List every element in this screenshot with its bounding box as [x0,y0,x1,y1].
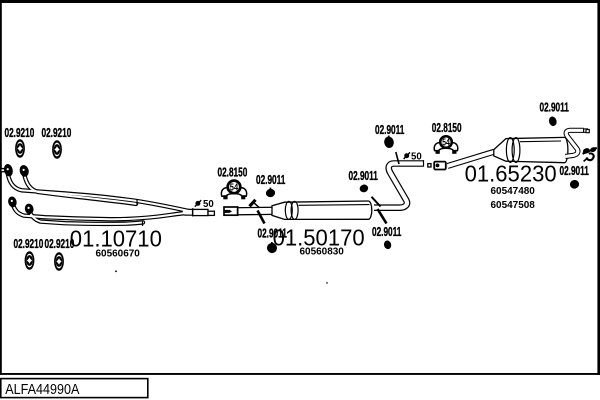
svg-text:02.9210: 02.9210 [14,237,44,251]
svg-text:02.9011: 02.9011 [540,101,569,115]
svg-text:02.9210: 02.9210 [42,126,72,140]
svg-text:02.9011: 02.9011 [256,173,285,187]
svg-text:02.9210: 02.9210 [5,126,35,140]
svg-text:50: 50 [411,151,422,162]
svg-text:02.8150: 02.8150 [218,166,248,180]
svg-text:02.9210: 02.9210 [45,237,75,251]
svg-text:50: 50 [203,199,214,210]
svg-text:02.9011: 02.9011 [375,123,404,137]
svg-text:02.9011: 02.9011 [372,225,401,239]
svg-text:01.65230: 01.65230 [465,161,557,187]
svg-text:02.9011: 02.9011 [560,164,589,178]
svg-text:60547480: 60547480 [491,186,536,197]
svg-text:54: 54 [442,136,450,147]
svg-text:02.9011: 02.9011 [349,169,378,183]
svg-text:02.9011: 02.9011 [258,227,287,241]
svg-text:60560830: 60560830 [300,246,345,257]
svg-text:60560670: 60560670 [96,248,141,259]
svg-text:02.8150: 02.8150 [432,121,462,135]
svg-text:60547508: 60547508 [491,200,536,211]
svg-text:ALFA44990A: ALFA44990A [5,380,80,397]
svg-text:54: 54 [230,181,239,192]
